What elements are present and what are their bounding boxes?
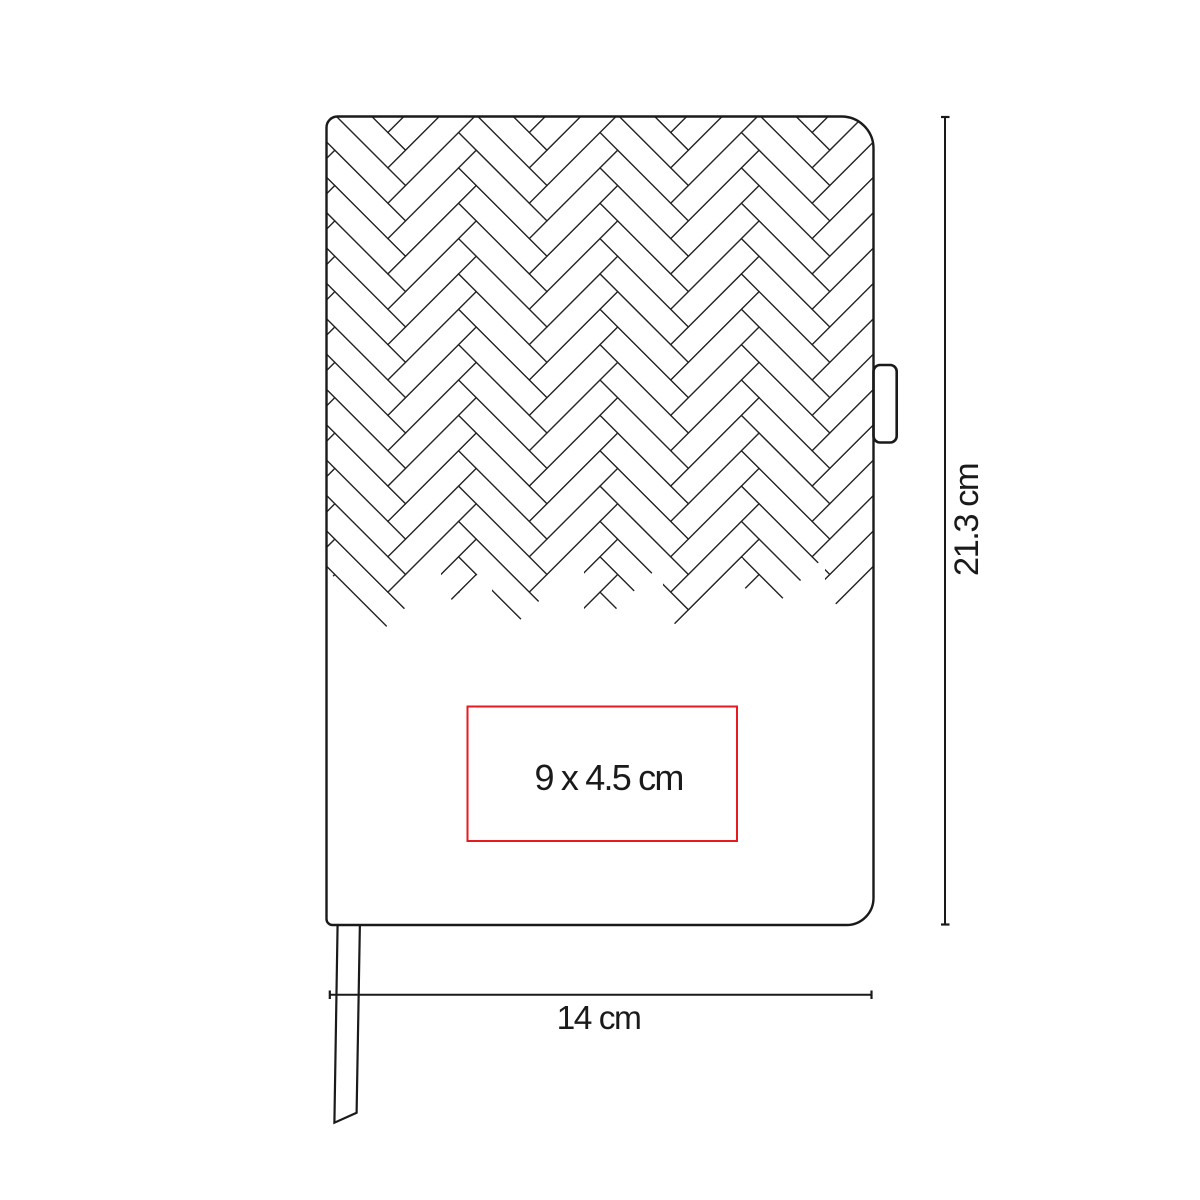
svg-text:9 x 4.5 cm: 9 x 4.5 cm <box>534 757 682 798</box>
svg-text:14 cm: 14 cm <box>557 1000 641 1037</box>
svg-text:21.3 cm: 21.3 cm <box>948 464 986 576</box>
